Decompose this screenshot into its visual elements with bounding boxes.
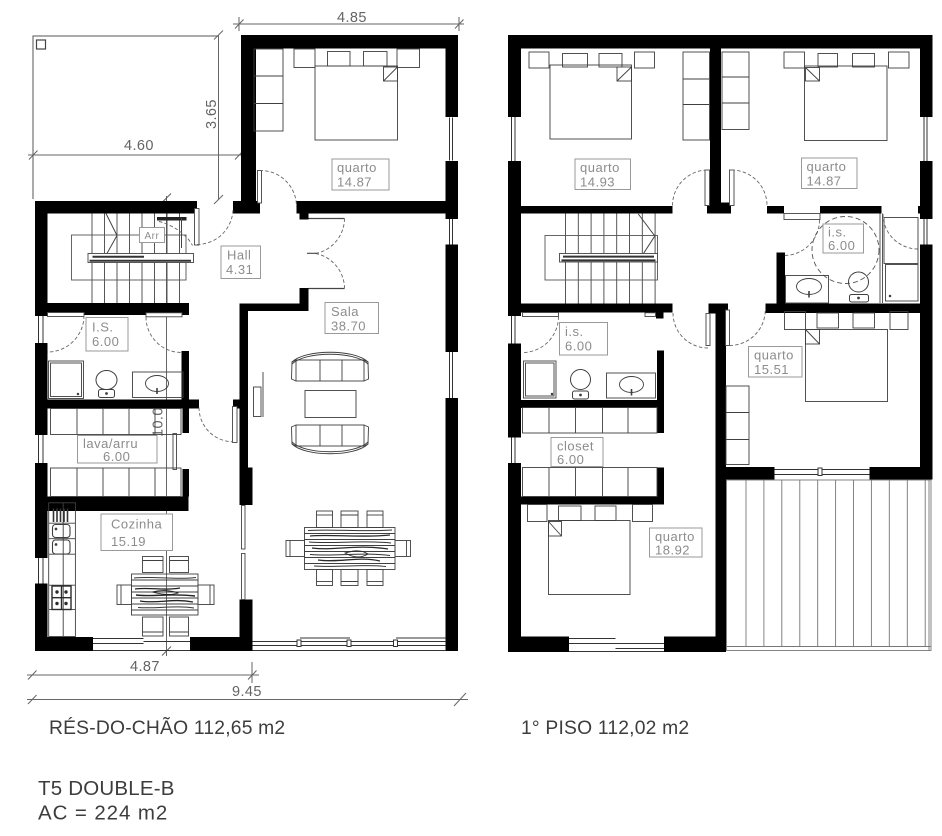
- svg-text:quarto: quarto: [337, 160, 377, 175]
- svg-text:AC = 224 m2: AC = 224 m2: [38, 802, 168, 825]
- svg-text:4.31: 4.31: [226, 262, 253, 277]
- svg-text:6.00: 6.00: [828, 238, 855, 253]
- svg-text:3.65: 3.65: [204, 99, 220, 129]
- svg-text:38.70: 38.70: [331, 319, 366, 334]
- svg-text:T5 DOUBLE-B: T5 DOUBLE-B: [38, 777, 175, 800]
- svg-text:15.51: 15.51: [754, 362, 789, 377]
- svg-text:4.85: 4.85: [337, 10, 367, 26]
- svg-text:6.00: 6.00: [557, 452, 584, 467]
- svg-text:4.87: 4.87: [130, 659, 160, 675]
- svg-text:9.45: 9.45: [232, 684, 262, 700]
- svg-text:RÉS-DO-CHÃO 112,65 m2: RÉS-DO-CHÃO 112,65 m2: [49, 716, 285, 739]
- svg-text:14.93: 14.93: [580, 175, 615, 190]
- svg-text:14.87: 14.87: [807, 174, 842, 189]
- svg-text:1° PISO 112,02 m2: 1° PISO 112,02 m2: [521, 718, 689, 739]
- svg-text:14.87: 14.87: [337, 175, 372, 190]
- svg-text:Sala: Sala: [331, 304, 359, 319]
- svg-text:15.19: 15.19: [111, 534, 146, 549]
- svg-text:quarto: quarto: [580, 160, 620, 175]
- svg-text:4.60: 4.60: [124, 138, 154, 154]
- svg-text:6.00: 6.00: [565, 339, 592, 354]
- svg-text:Hall: Hall: [227, 248, 251, 263]
- svg-text:Arr: Arr: [145, 231, 160, 242]
- svg-text:I.S.: I.S.: [92, 320, 114, 335]
- svg-text:quarto: quarto: [807, 159, 847, 174]
- svg-text:Cozinha: Cozinha: [111, 517, 162, 532]
- svg-text:18.92: 18.92: [655, 543, 690, 558]
- svg-text:i.s.: i.s.: [565, 324, 584, 339]
- svg-text:6.00: 6.00: [103, 449, 130, 464]
- svg-text:quarto: quarto: [754, 348, 794, 363]
- svg-text:6.00: 6.00: [92, 334, 119, 349]
